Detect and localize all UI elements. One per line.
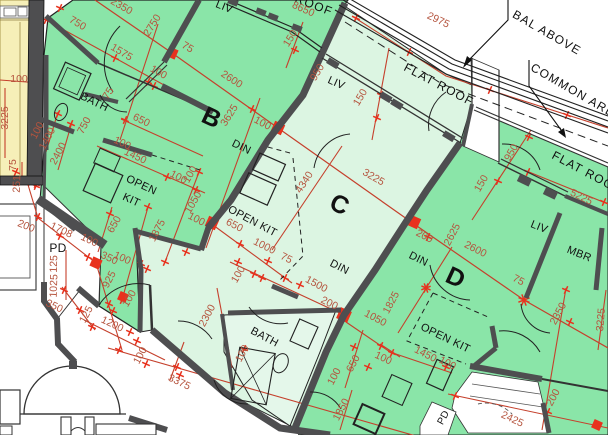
svg-text:PD: PD	[49, 241, 66, 255]
svg-text:125: 125	[48, 255, 61, 273]
svg-text:3225: 3225	[0, 106, 11, 130]
svg-text:75: 75	[7, 159, 19, 171]
svg-text:3225: 3225	[594, 307, 608, 331]
svg-text:1025: 1025	[48, 274, 61, 298]
svg-text:100: 100	[10, 73, 28, 85]
svg-text:251: 251	[11, 175, 24, 193]
